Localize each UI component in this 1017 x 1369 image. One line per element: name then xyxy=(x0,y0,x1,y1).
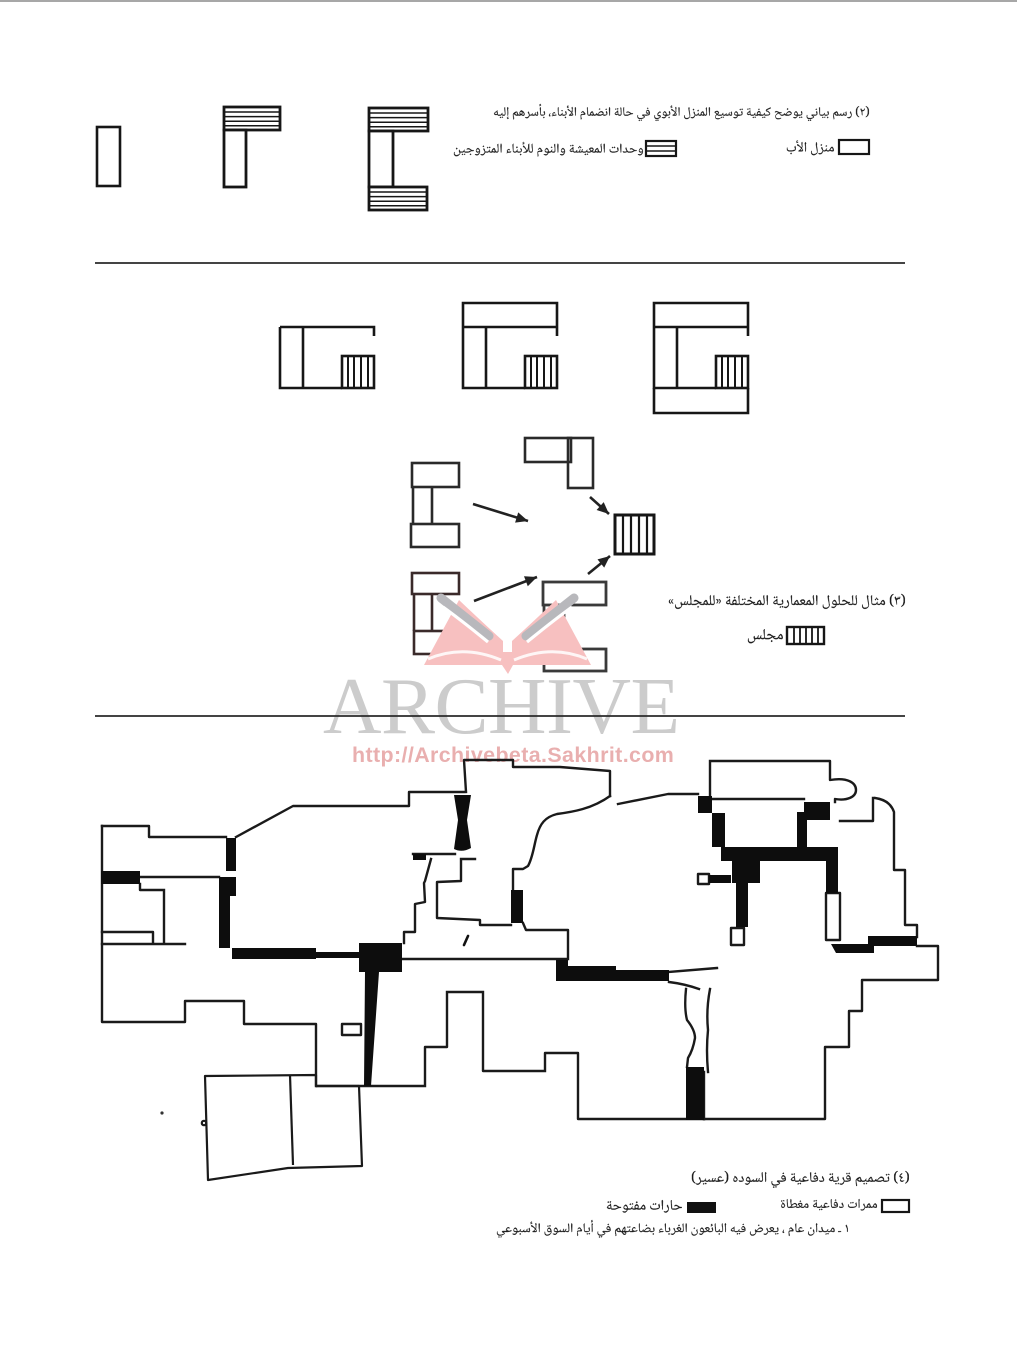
svg-text:ARCHIVE: ARCHIVE xyxy=(323,661,680,751)
